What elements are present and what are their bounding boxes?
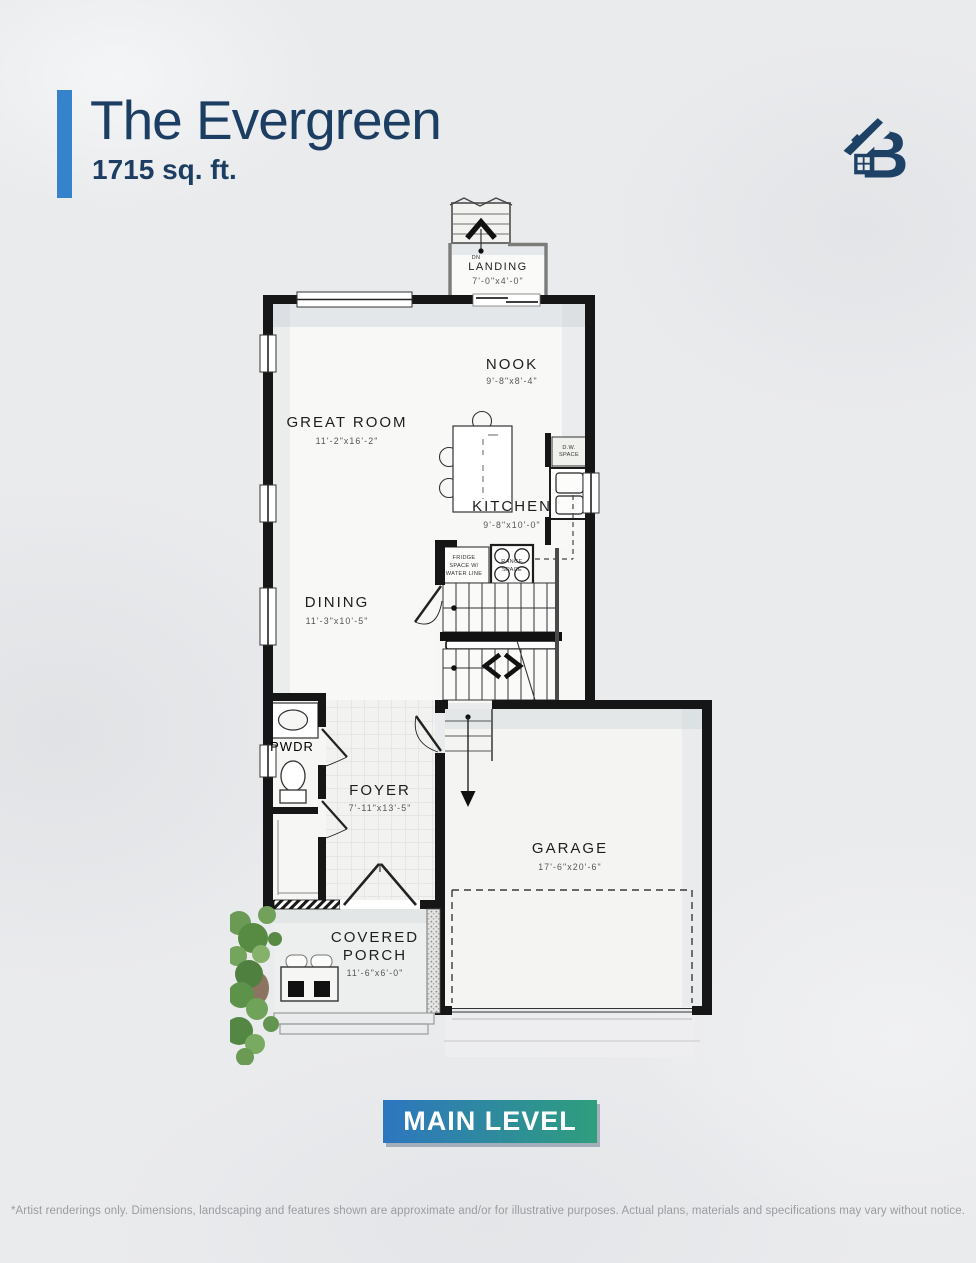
main-level-badge: MAIN LEVEL [383, 1100, 597, 1143]
label-covered: COVERED [331, 929, 419, 946]
label-fridge-1: FRIDGE [453, 555, 476, 561]
label-dw-1: D.W. [562, 445, 575, 451]
patio-door-landing [473, 294, 540, 306]
label-garage: GARAGE [532, 840, 608, 857]
floor-plan-drawing: LANDING 7'-0"x4'-0" DN NOOK 9'-8"x8'-4" … [230, 195, 730, 1065]
dims-porch: 11'-6"x6'-0" [347, 968, 404, 978]
dims-kitchen: 9'-8"x10'-0" [483, 520, 541, 530]
label-porch: PORCH [343, 947, 407, 964]
plan-square-footage: 1715 sq. ft. [92, 154, 237, 186]
label-great-room: GREAT ROOM [286, 414, 407, 431]
window-left-1 [260, 335, 276, 372]
builder-logo-icon: B [842, 110, 918, 190]
dims-nook: 9'-8"x8'-4" [486, 376, 538, 386]
label-dw-2: SPACE [559, 452, 579, 458]
label-nook: NOOK [486, 356, 538, 373]
title-accent-bar [57, 90, 72, 198]
porch-steps [274, 1013, 434, 1034]
plan-title: The Evergreen [90, 88, 441, 152]
label-pwdr: PWDR [270, 739, 314, 754]
dims-dining: 11'-3"x10'-5" [306, 616, 369, 626]
label-dining: DINING [305, 594, 370, 611]
label-dn: DN [472, 255, 481, 261]
flyer-page: The Evergreen 1715 sq. ft. B [0, 0, 976, 1263]
label-fridge-2: SPACE W/ [449, 563, 478, 569]
builder-logo: B [842, 110, 918, 190]
dims-foyer: 7'-11"x13'-5" [349, 803, 412, 813]
label-fridge-3: WATER LINE [446, 571, 483, 577]
floor-plan: LANDING 7'-0"x4'-0" DN NOOK 9'-8"x8'-4" … [230, 195, 730, 1065]
disclaimer-text: *Artist renderings only. Dimensions, lan… [0, 1205, 976, 1217]
label-range-2: SPACE [502, 567, 522, 573]
window-left-2 [260, 485, 276, 522]
window-left-3 [260, 588, 276, 645]
label-range-1: RANGE [501, 559, 522, 565]
range-space [491, 545, 533, 585]
window-top [297, 292, 412, 307]
label-kitchen: KITCHEN [472, 498, 552, 515]
label-landing: LANDING [468, 261, 527, 273]
window-kitchen-sink [583, 473, 599, 513]
dims-landing: 7'-0"x4'-0" [472, 276, 524, 286]
label-foyer: FOYER [349, 782, 411, 799]
dims-garage: 17'-6"x20'-6" [538, 862, 602, 872]
kitchen-sink [550, 468, 588, 519]
dims-great-room: 11'-2"x16'-2" [316, 436, 379, 446]
